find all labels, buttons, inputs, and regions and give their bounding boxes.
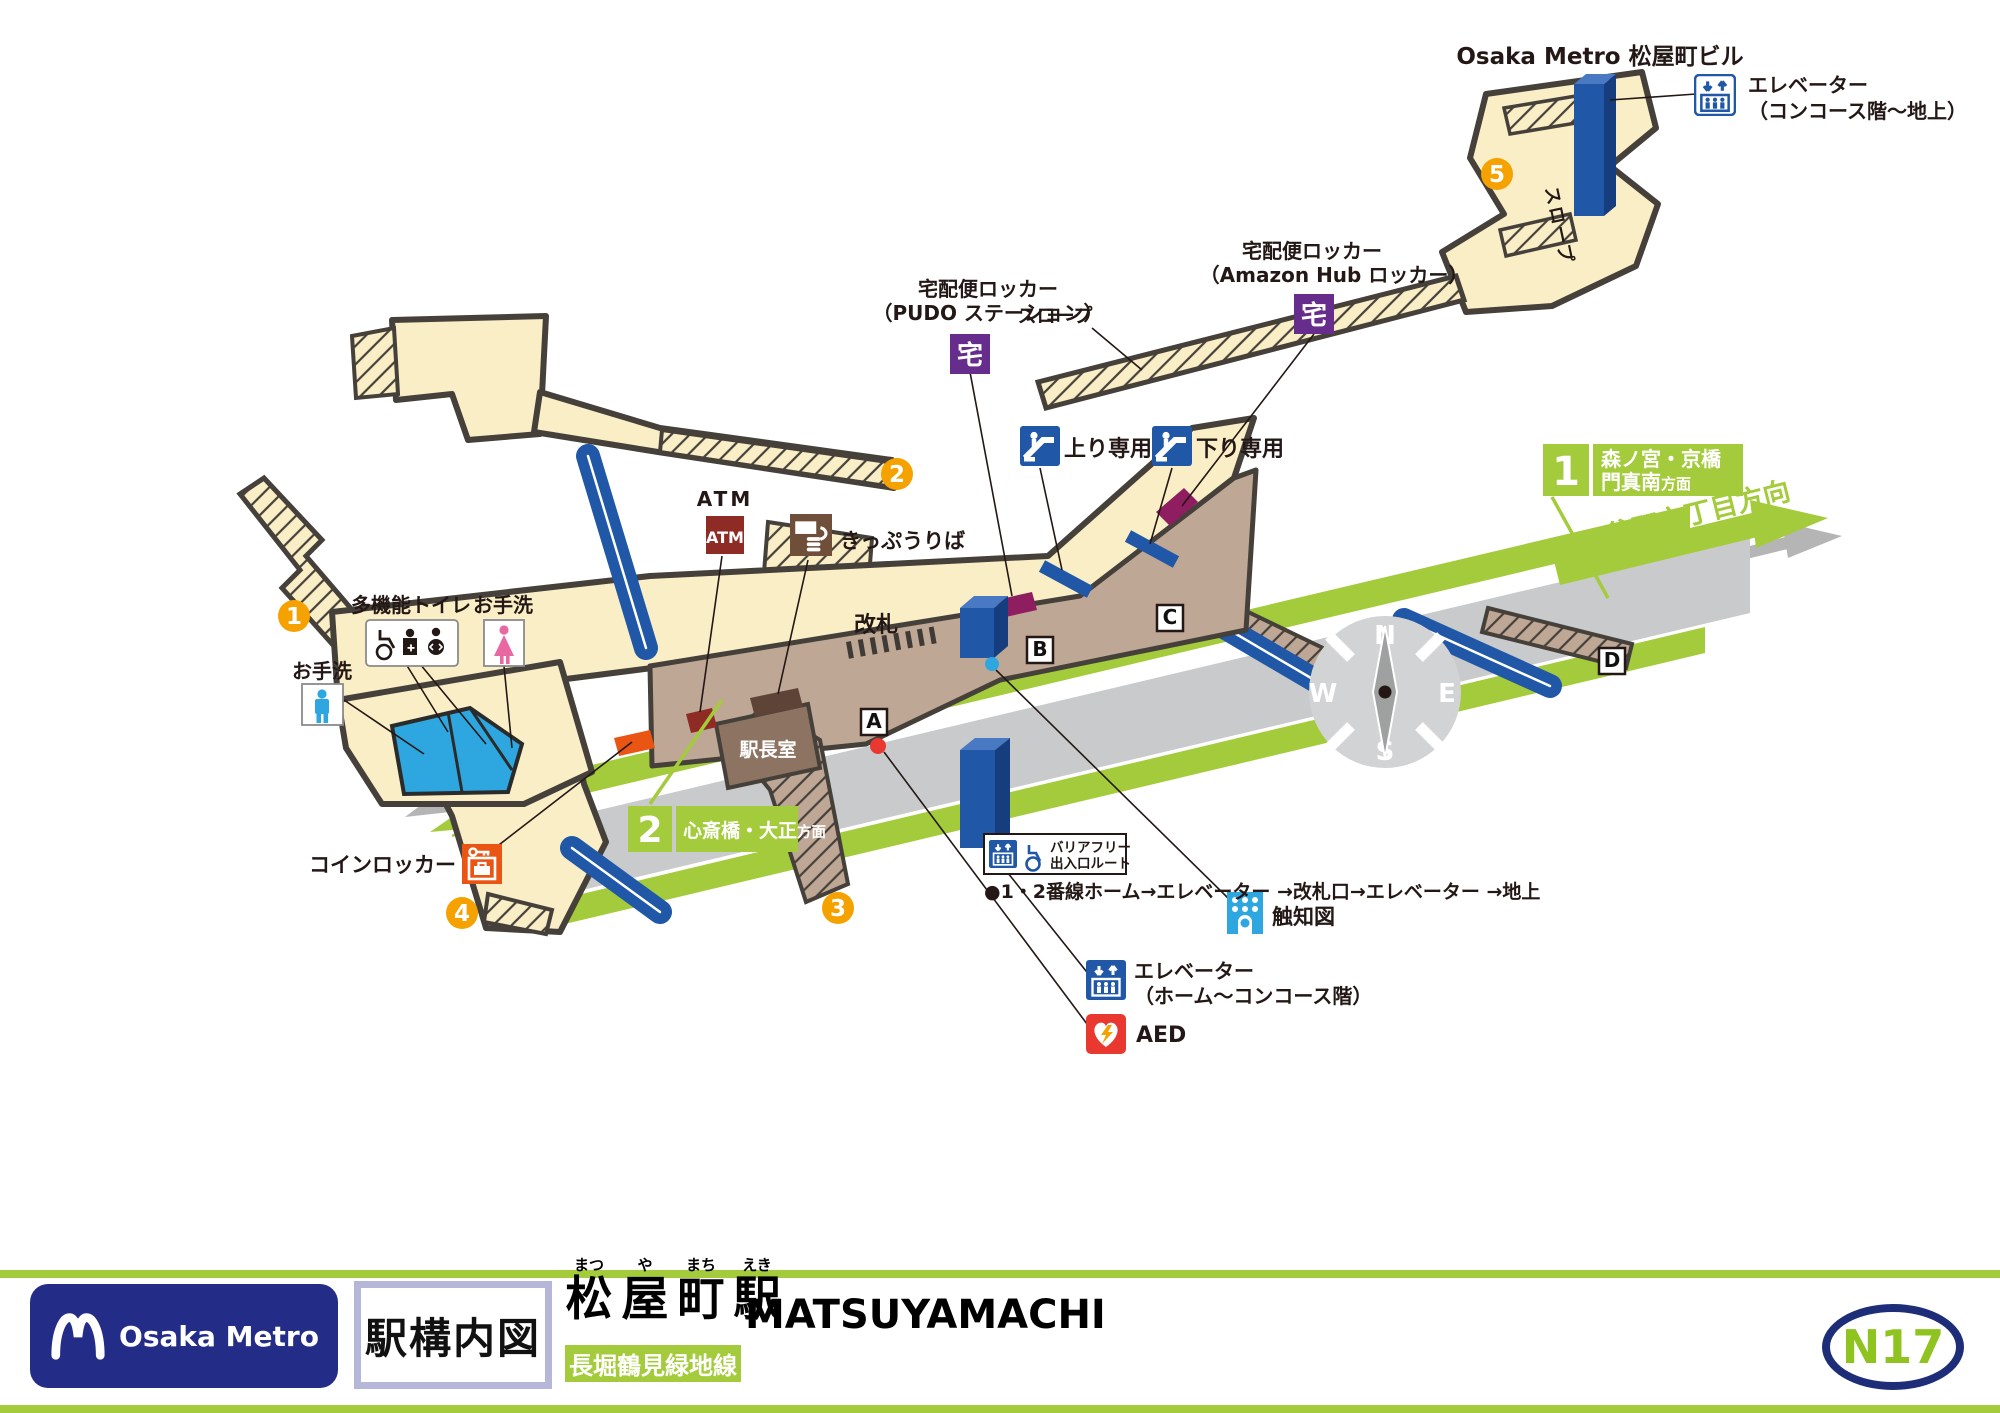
toilet-male-icon: [302, 684, 343, 725]
slope-label: スロープ: [1018, 304, 1094, 327]
platform-elevator-label2: （ホーム〜コンコース階）: [1134, 984, 1372, 1008]
station-map: 谷町六丁目方向 長堀橋方向 スロープ 駅長室: [0, 0, 2000, 1268]
svg-text:宅配便ロッカー: 宅配便ロッカー: [918, 277, 1058, 301]
gate-label: 改札: [854, 612, 898, 638]
line-name-box: 長堀鶴見緑地線: [565, 1345, 741, 1382]
exit2-west-stairs: [352, 328, 398, 398]
barrier-free-box: バリアフリー 出入口ルート: [984, 834, 1131, 874]
metro-m-icon: [49, 1310, 107, 1362]
building-elevator-tower: [1574, 74, 1616, 216]
concourse-elevator-icon: [1695, 75, 1735, 115]
osaka-metro-logo: Osaka Metro: [30, 1284, 338, 1388]
atm-label: ATM: [697, 487, 753, 511]
svg-text:宅配便ロッカー: 宅配便ロッカー: [1242, 239, 1382, 263]
svg-text:E: E: [1438, 679, 1456, 709]
amazon-locker-legend: 宅配便ロッカー （Amazon Hub ロッカー） 宅: [1200, 239, 1469, 334]
svg-text:森ノ宮・京橋: 森ノ宮・京橋: [1601, 447, 1722, 471]
station-romaji: MATSUYAMACHI: [745, 1292, 1106, 1338]
svg-text:4: 4: [454, 901, 470, 927]
multi-toilet-icon: [366, 620, 458, 666]
building-label: Osaka Metro 松屋町ビル: [1456, 44, 1743, 70]
svg-text:2: 2: [889, 462, 905, 488]
svg-text:B: B: [1032, 637, 1047, 661]
concourse-elevator-label2: （コンコース階〜地上）: [1748, 99, 1967, 123]
brand-label: Osaka Metro: [119, 1320, 319, 1353]
svg-text:C: C: [1163, 605, 1178, 629]
concourse-elevator-label1: エレベーター: [1748, 73, 1868, 97]
svg-text:3: 3: [830, 896, 846, 922]
compass: N E S W: [1309, 616, 1461, 768]
escalator-up-icon: [1020, 426, 1060, 466]
toil-f-label: お手洗: [473, 593, 533, 617]
concourse-elevator-shaft: [960, 596, 1008, 658]
ticket-window-label: きっぷうりば: [840, 529, 965, 553]
track1-box: 1 森ノ宮・京橋 門真南方面: [1543, 444, 1743, 496]
track2-box: 2 心斎橋・大正方面: [628, 806, 826, 852]
platform-elevator-label1: エレベーター: [1134, 959, 1254, 983]
escalator-up-label: 上り専用: [1064, 437, 1152, 462]
map-type-box: 駅構内図: [354, 1281, 552, 1389]
toilet-female-icon: [484, 620, 524, 666]
svg-text:バリアフリー: バリアフリー: [1050, 840, 1131, 856]
svg-text:宅: 宅: [957, 340, 983, 371]
station-number-badge: N17: [1822, 1304, 1964, 1390]
footer-bottom-rule: [0, 1405, 2000, 1413]
platform-elevator-icon: [1086, 960, 1126, 1000]
coin-locker-label: コインロッカー: [309, 853, 456, 877]
coin-locker-icon: [462, 844, 502, 884]
svg-text:ATM: ATM: [706, 528, 744, 547]
kanji: 屋: [619, 1274, 671, 1326]
toil-m-label: お手洗: [292, 659, 352, 683]
escalator-down-icon: [1152, 426, 1192, 466]
svg-text:2: 2: [637, 810, 662, 851]
tactile-label: 触知図: [1272, 905, 1335, 929]
barrier-free-route-text: ●1・2番線ホーム→エレベーター →改札口→エレベーター →地上: [984, 880, 1540, 903]
ticket-window-icon: [790, 514, 832, 556]
svg-text:出入口ルート: 出入口ルート: [1050, 855, 1131, 872]
multi-toilet-label: 多機能トイレ: [351, 593, 471, 617]
svg-text:（Amazon Hub ロッカー）: （Amazon Hub ロッカー）: [1200, 263, 1469, 287]
platform-elevator-shaft: [960, 738, 1010, 848]
footer-top-rule: [0, 1270, 2000, 1278]
kanji: 町: [675, 1274, 727, 1326]
svg-text:5: 5: [1489, 162, 1505, 188]
kanji: 松: [563, 1274, 615, 1326]
aed-label: AED: [1136, 1023, 1186, 1048]
escalator-down-label: 下り専用: [1196, 437, 1284, 462]
svg-text:1: 1: [1552, 449, 1580, 495]
svg-text:1: 1: [286, 604, 302, 630]
svg-text:W: W: [1309, 679, 1338, 709]
aed-icon: [1086, 1014, 1126, 1054]
svg-text:A: A: [866, 709, 882, 733]
exit2-ramp: [660, 430, 888, 486]
tactile-map-dot: [985, 657, 999, 671]
svg-text:宅: 宅: [1301, 300, 1327, 331]
svg-text:D: D: [1604, 648, 1621, 672]
long-slope-ramp: [1038, 276, 1464, 408]
station-office-label: 駅長室: [738, 738, 796, 761]
aed-dot: [870, 738, 886, 754]
exit2-upper-hall: [392, 316, 546, 440]
